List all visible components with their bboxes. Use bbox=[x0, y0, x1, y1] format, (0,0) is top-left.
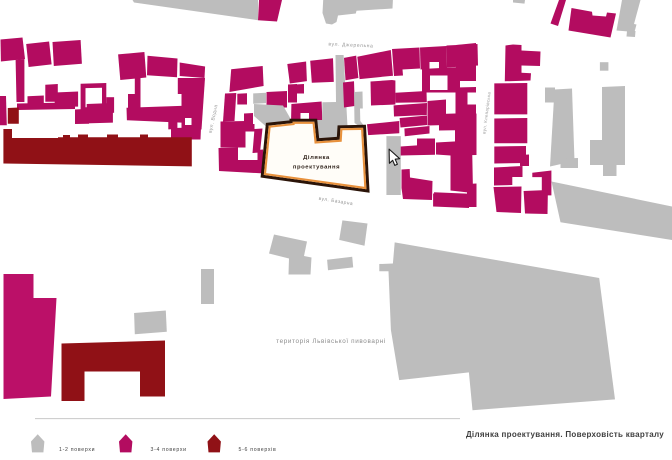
svg-text:Ділянка: Ділянка bbox=[303, 155, 330, 161]
svg-text:3-4 поверхи: 3-4 поверхи bbox=[151, 447, 187, 453]
svg-text:Ділянка проектування. Поверхов: Ділянка проектування. Поверховість кварт… bbox=[466, 430, 664, 439]
svg-text:5-6 поверхів: 5-6 поверхів bbox=[239, 447, 277, 453]
svg-text:проектування: проектування bbox=[293, 164, 340, 170]
svg-text:1-2 поверхи: 1-2 поверхи bbox=[59, 447, 95, 453]
svg-text:територія Львівської пивоварні: територія Львівської пивоварні bbox=[276, 337, 386, 345]
